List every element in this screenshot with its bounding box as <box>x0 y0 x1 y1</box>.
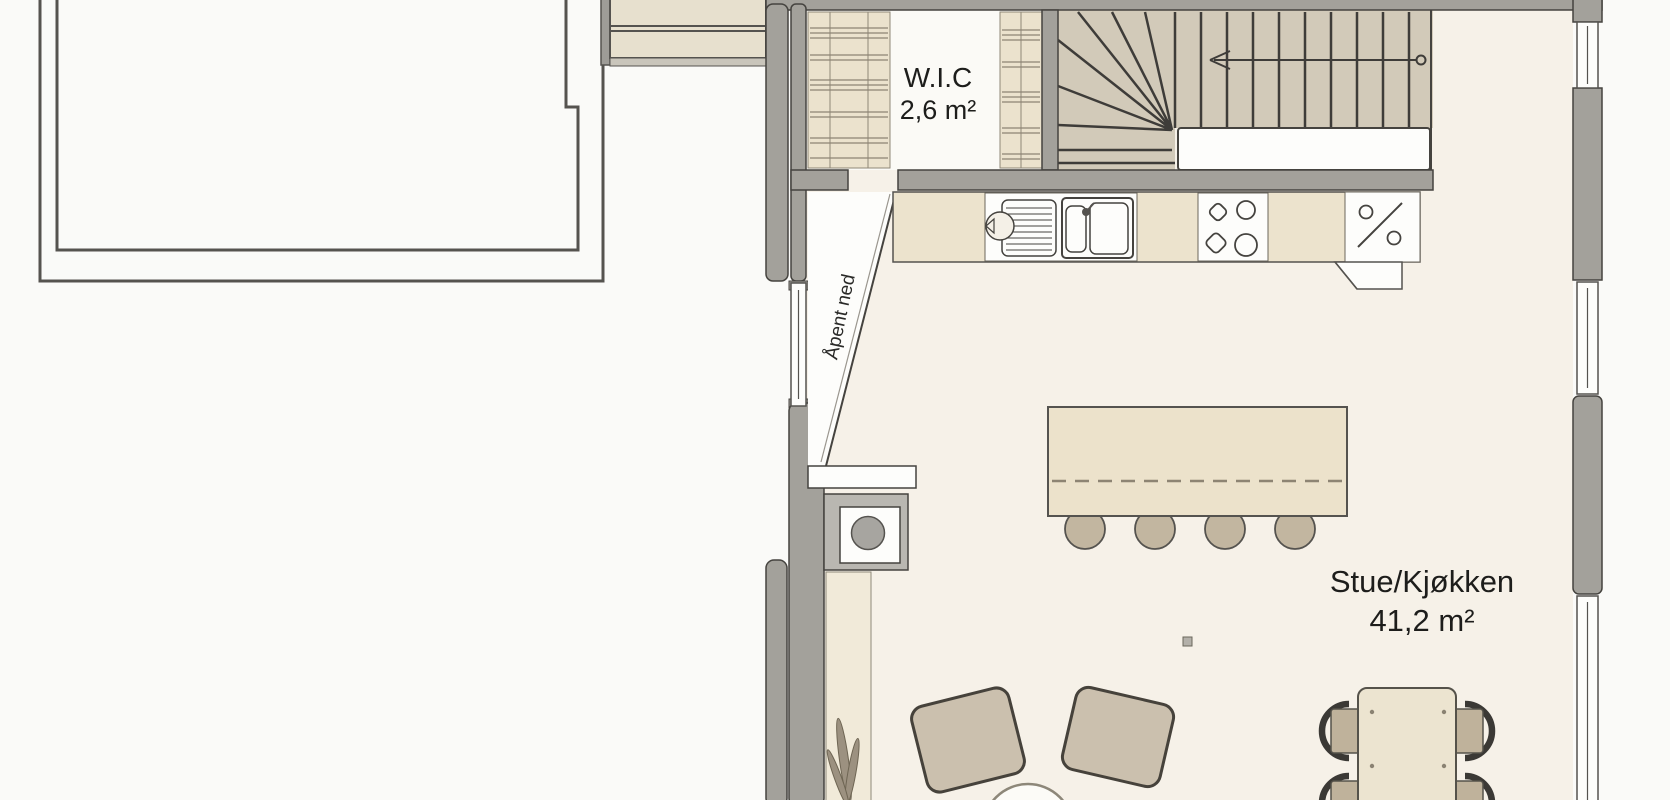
left-wall-lower-outer <box>766 560 787 800</box>
window-top <box>1577 22 1598 88</box>
stair-landing <box>1178 128 1430 170</box>
right-wall-segment <box>1573 0 1602 22</box>
wic-room-area: 2,6 m² <box>900 95 977 125</box>
floor-plan-page: W.I.C 2,6 m² <box>0 0 1670 800</box>
wood-stove-icon <box>852 517 885 550</box>
dining-group <box>1322 688 1492 800</box>
wic-stair-divider-wall <box>1042 10 1058 170</box>
cooktop-cabinet <box>1198 193 1268 261</box>
entrance-steps <box>601 0 766 66</box>
void-sill <box>808 466 916 488</box>
wardrobe-left <box>808 12 890 168</box>
burner-icon <box>1237 201 1255 219</box>
floor-socket-icon <box>1183 637 1192 646</box>
stair-winder-area <box>1058 10 1175 170</box>
dishwasher-cabinet <box>1345 192 1420 262</box>
window-middle <box>1577 282 1598 394</box>
living-room-area: 41,2 m² <box>1369 603 1474 638</box>
wardrobe-right <box>1000 12 1042 168</box>
right-wall-segment <box>1573 396 1602 594</box>
top-exterior-wall <box>766 0 1602 10</box>
left-wall-upper-outer <box>766 4 788 281</box>
right-wall-segment <box>1573 88 1602 280</box>
dining-table <box>1358 688 1456 800</box>
floor-plan-canvas: W.I.C 2,6 m² <box>0 0 1670 800</box>
left-window <box>791 283 806 406</box>
window-bottom <box>1577 596 1598 800</box>
winder-staircase <box>1058 10 1433 170</box>
burner-icon <box>1235 234 1257 256</box>
kitchen-wall-left <box>791 170 848 190</box>
kitchen-wall-right <box>898 170 1433 190</box>
living-room-name: Stue/Kjøkken <box>1330 564 1514 599</box>
kitchen-sink <box>1062 198 1133 258</box>
wic-room-name: W.I.C <box>904 62 972 93</box>
kitchen-island <box>1048 407 1347 516</box>
hearth <box>824 494 908 570</box>
left-wall-upper-inner <box>791 4 806 281</box>
wic-room: W.I.C 2,6 m² <box>806 10 1042 170</box>
